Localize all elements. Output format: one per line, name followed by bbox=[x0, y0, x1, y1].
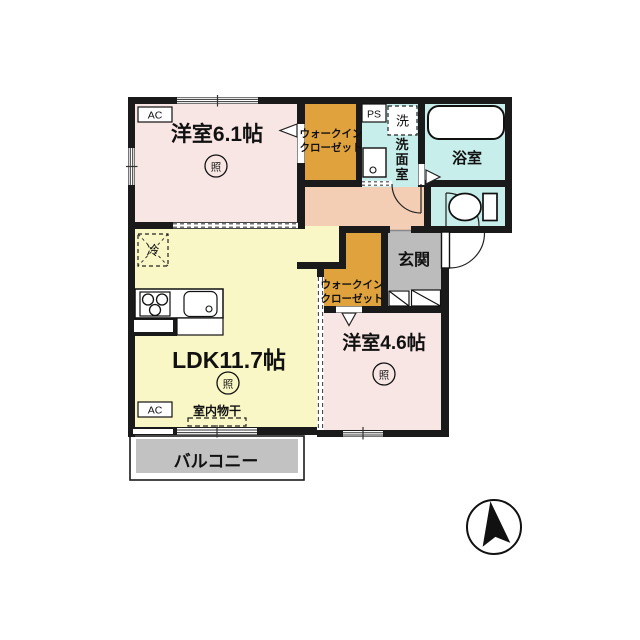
entrance-label: 玄関 bbox=[398, 250, 430, 269]
wic1-label-line1: ウォークイン bbox=[300, 128, 363, 140]
washer-label: 洗 bbox=[396, 114, 409, 129]
front-door-leaf bbox=[442, 232, 450, 268]
floor-plan-drawing: 洋室6.1帖 照 LDK11.7帖 照 洋室4.6帖 照 ウォークイン クローゼ… bbox=[0, 0, 640, 640]
north-arrow-icon bbox=[467, 499, 521, 554]
ps-label: PS bbox=[367, 109, 381, 121]
bedroom2-label: 洋室4.6帖 bbox=[342, 331, 425, 354]
wic1-label-line2: クローゼット bbox=[300, 141, 363, 154]
balcony-label: バルコニー bbox=[174, 452, 259, 471]
washroom-label-char1: 洗 bbox=[395, 137, 408, 152]
sink-icon bbox=[184, 292, 217, 317]
floor-plan-page: 洋室6.1帖 照 LDK11.7帖 照 洋室4.6帖 照 ウォークイン クローゼ… bbox=[0, 0, 640, 640]
washbasin bbox=[363, 148, 386, 177]
toilet-fixture bbox=[449, 194, 497, 221]
front-door-arc bbox=[450, 233, 485, 268]
ac-label-bedroom1: AC bbox=[148, 110, 163, 122]
toilet-tank-icon bbox=[483, 194, 497, 221]
wic2-label-line1: ウォークイン bbox=[321, 279, 384, 291]
wic2-label-line2: クローゼット bbox=[321, 292, 384, 305]
bathtub-icon bbox=[428, 106, 504, 139]
ldk-label: LDK11.7帖 bbox=[172, 347, 286, 373]
indoor-drying-label: 室内物干 bbox=[193, 403, 241, 418]
bedroom2-light-label: 照 bbox=[379, 370, 390, 382]
bath-label: 浴室 bbox=[452, 149, 482, 167]
ldk-light-label: 照 bbox=[223, 379, 234, 391]
fridge-label: 冷 bbox=[146, 243, 159, 258]
shoe-cabinets bbox=[389, 290, 441, 306]
bedroom1-label: 洋室6.1帖 bbox=[171, 122, 263, 146]
toilet-bowl-icon bbox=[449, 194, 481, 221]
bedroom1-light-label: 照 bbox=[211, 162, 222, 174]
ac-label-ldk: AC bbox=[148, 405, 163, 417]
washroom-label-char3: 室 bbox=[395, 167, 408, 182]
counter-front bbox=[177, 318, 223, 335]
washroom-label-char2: 面 bbox=[395, 152, 408, 167]
